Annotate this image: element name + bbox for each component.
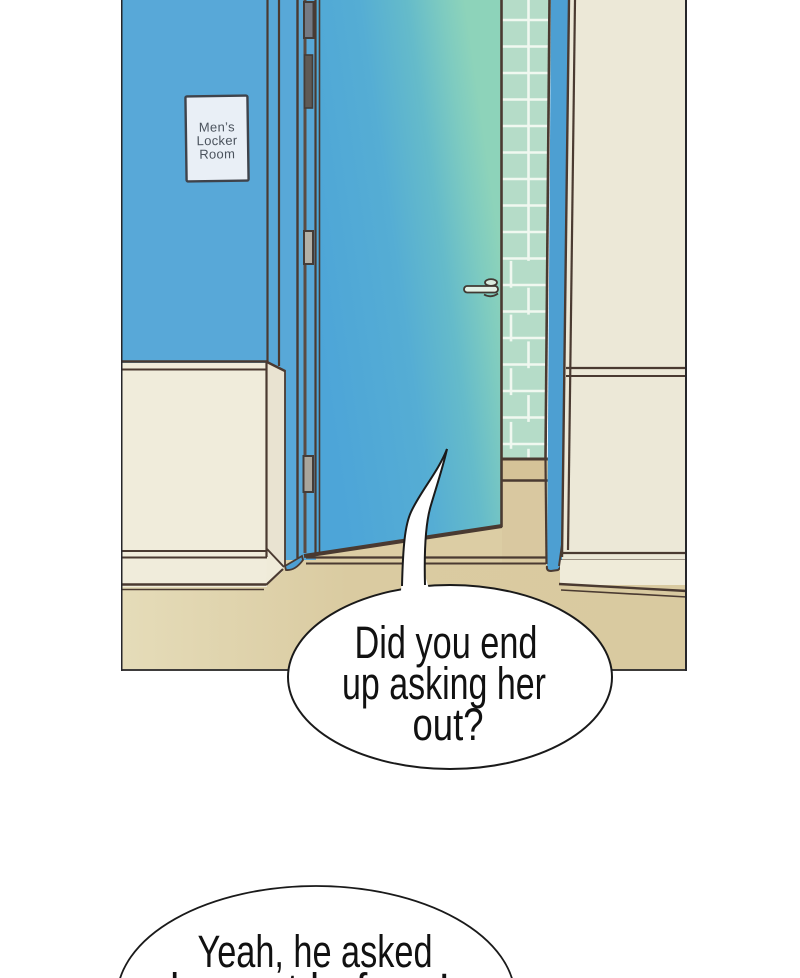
svg-text:her out before I: her out before I [170, 964, 450, 978]
svg-text:Room: Room [199, 146, 235, 161]
svg-text:out?: out? [413, 699, 484, 750]
